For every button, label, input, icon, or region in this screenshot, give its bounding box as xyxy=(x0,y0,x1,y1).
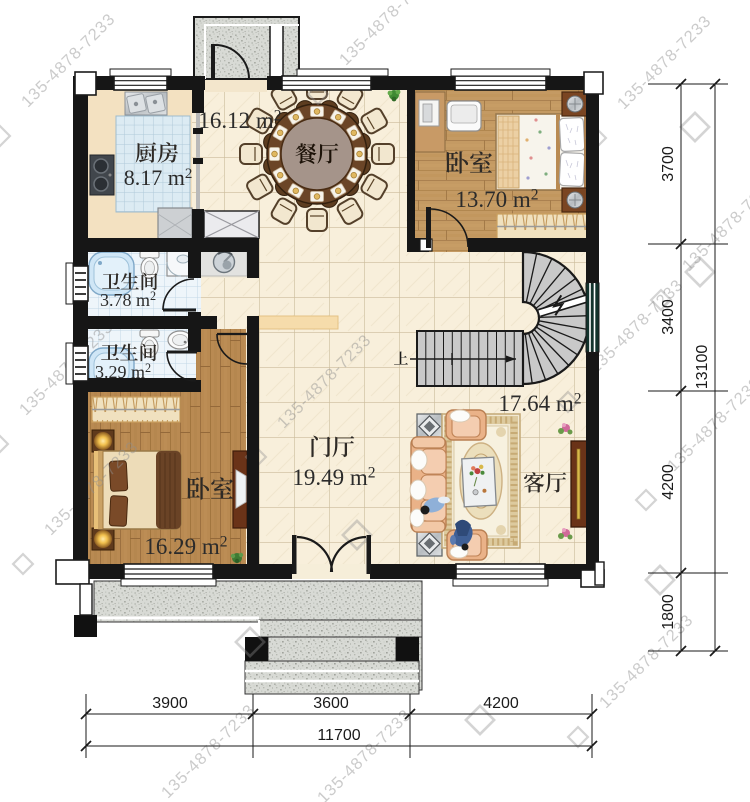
svg-text:16.12 m2: 16.12 m2 xyxy=(198,108,281,133)
svg-text:11700: 11700 xyxy=(317,727,360,744)
svg-text:3700: 3700 xyxy=(660,146,677,182)
svg-text:13100: 13100 xyxy=(694,345,711,390)
svg-text:8.17 m2: 8.17 m2 xyxy=(124,165,193,190)
svg-text:4200: 4200 xyxy=(660,464,677,500)
svg-text:3900: 3900 xyxy=(152,695,188,712)
svg-text:3.78 m2: 3.78 m2 xyxy=(100,289,156,310)
svg-text:17.64 m2: 17.64 m2 xyxy=(498,391,581,416)
svg-text:1800: 1800 xyxy=(660,594,677,630)
svg-text:3.29 m2: 3.29 m2 xyxy=(95,361,151,382)
svg-text:19.49 m2: 19.49 m2 xyxy=(292,465,375,490)
svg-text:4200: 4200 xyxy=(483,695,519,712)
svg-text:3400: 3400 xyxy=(660,299,677,335)
svg-text:16.29 m2: 16.29 m2 xyxy=(144,534,227,559)
svg-text:3600: 3600 xyxy=(313,695,349,712)
svg-text:13.70 m2: 13.70 m2 xyxy=(455,187,538,212)
